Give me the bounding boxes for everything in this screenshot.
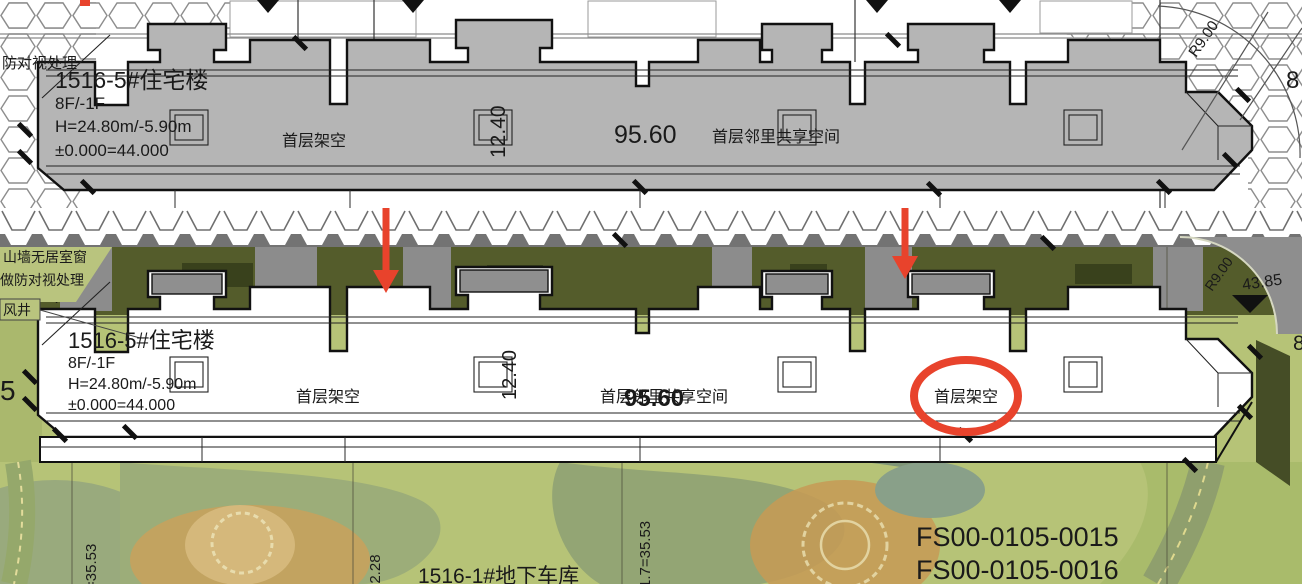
edge-number-bottom: 5 xyxy=(0,375,16,406)
building-floors-top: 8F/-1F xyxy=(55,94,105,113)
gable-note-1: 山墙无居室窗 xyxy=(3,249,87,265)
building-datum-top: ±0.000=44.000 xyxy=(55,141,169,160)
wind-shaft-label: 风井 xyxy=(3,302,31,318)
stilt-note-circled: 首层架空 xyxy=(934,388,998,406)
cad-comparison-screenshot: 防对视处理 1516-5#住宅楼 8F/-1F H=24.80m/-5.90m … xyxy=(0,0,1302,584)
red-tick xyxy=(80,0,90,6)
building-floors-bottom: 8F/-1F xyxy=(68,355,115,372)
vertical-dim-top: 12.40 xyxy=(487,105,510,158)
edge-number-bottom-right: 8 xyxy=(1293,332,1302,355)
stilt-note-top: 首层架空 xyxy=(282,132,346,150)
boundary-bands xyxy=(0,208,1302,247)
terrace-strip xyxy=(40,437,1216,462)
building-height-top: H=24.80m/-5.90m xyxy=(55,117,192,136)
stilt-note-bottom-left: 首层架空 xyxy=(296,388,360,406)
area-value-bottom: 95.60 xyxy=(624,385,684,412)
building-title-top: 1516-5#住宅楼 xyxy=(55,67,208,93)
gable-note-2: 做防对视处理 xyxy=(0,272,84,288)
gray-band-notches xyxy=(0,234,1302,247)
garage-label: 1516-1#地下车库 xyxy=(418,565,579,584)
site-plan-canvas: 防对视处理 1516-5#住宅楼 8F/-1F H=24.80m/-5.90m … xyxy=(0,0,1302,584)
shared-space-note-top: 首层邻里共享空间 xyxy=(712,128,840,146)
sheet-number-1: FS00-0105-0015 xyxy=(916,522,1119,552)
sheet-number-2: FS00-0105-0016 xyxy=(916,555,1119,584)
top-drawing: 防对视处理 1516-5#住宅楼 8F/-1F H=24.80m/-5.90m … xyxy=(0,0,1302,237)
building-datum-bottom: ±0.000=44.000 xyxy=(68,397,175,414)
vertical-dim-bottom: 12.40 xyxy=(499,350,521,400)
dim-left-rotated: =35.53 xyxy=(83,544,100,584)
edge-number-top: 8 xyxy=(1286,67,1299,94)
building-title-bottom: 1516-5#住宅楼 xyxy=(68,328,215,353)
scallop-band xyxy=(0,208,1302,234)
building-height-bottom: H=24.80m/-5.90m xyxy=(68,376,197,393)
bottom-drawing: 山墙无居室窗 做防对视处理 风井 5 1516-5#住宅楼 8F/-1F H=2… xyxy=(0,232,1302,584)
area-value-top: 95.60 xyxy=(614,121,677,149)
dim-mid-rotated: 32.28 xyxy=(367,554,384,584)
building-shadow xyxy=(1256,340,1290,486)
dim-right-rotated: 1.7=35.53 xyxy=(637,521,654,584)
